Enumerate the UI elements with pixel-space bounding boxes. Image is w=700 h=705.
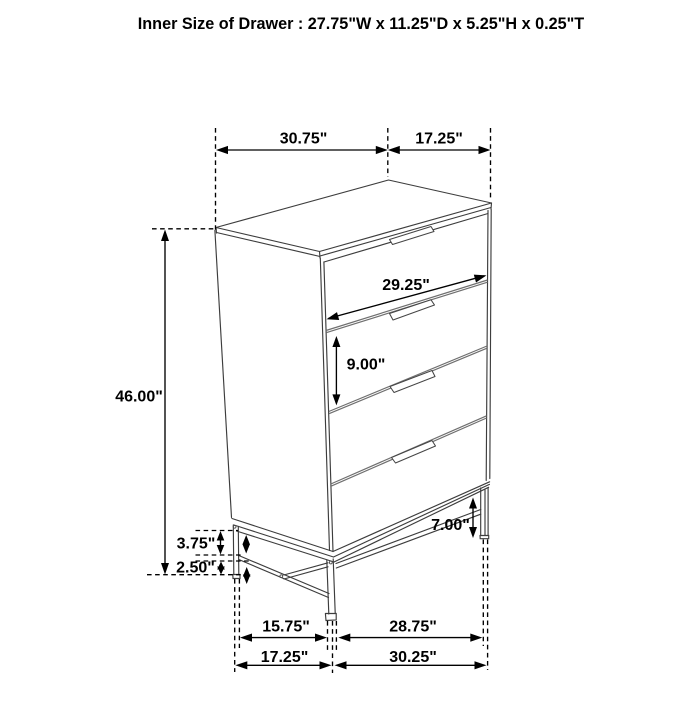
svg-text:29.25": 29.25" (382, 277, 430, 294)
svg-text:9.00": 9.00" (347, 357, 386, 374)
svg-text:30.25": 30.25" (389, 649, 437, 666)
svg-text:Inner Size of Drawer : 27.75"W: Inner Size of Drawer : 27.75"W x 11.25"D… (138, 15, 584, 33)
svg-text:2.50": 2.50" (176, 560, 215, 577)
svg-text:30.75": 30.75" (280, 131, 328, 148)
svg-text:28.75": 28.75" (389, 619, 437, 636)
svg-text:3.75": 3.75" (177, 536, 216, 553)
svg-text:17.25": 17.25" (261, 649, 309, 666)
svg-text:46.00": 46.00" (115, 389, 163, 406)
svg-text:15.75": 15.75" (262, 619, 310, 636)
svg-text:7.00": 7.00" (431, 517, 470, 534)
svg-text:17.25": 17.25" (415, 131, 463, 148)
